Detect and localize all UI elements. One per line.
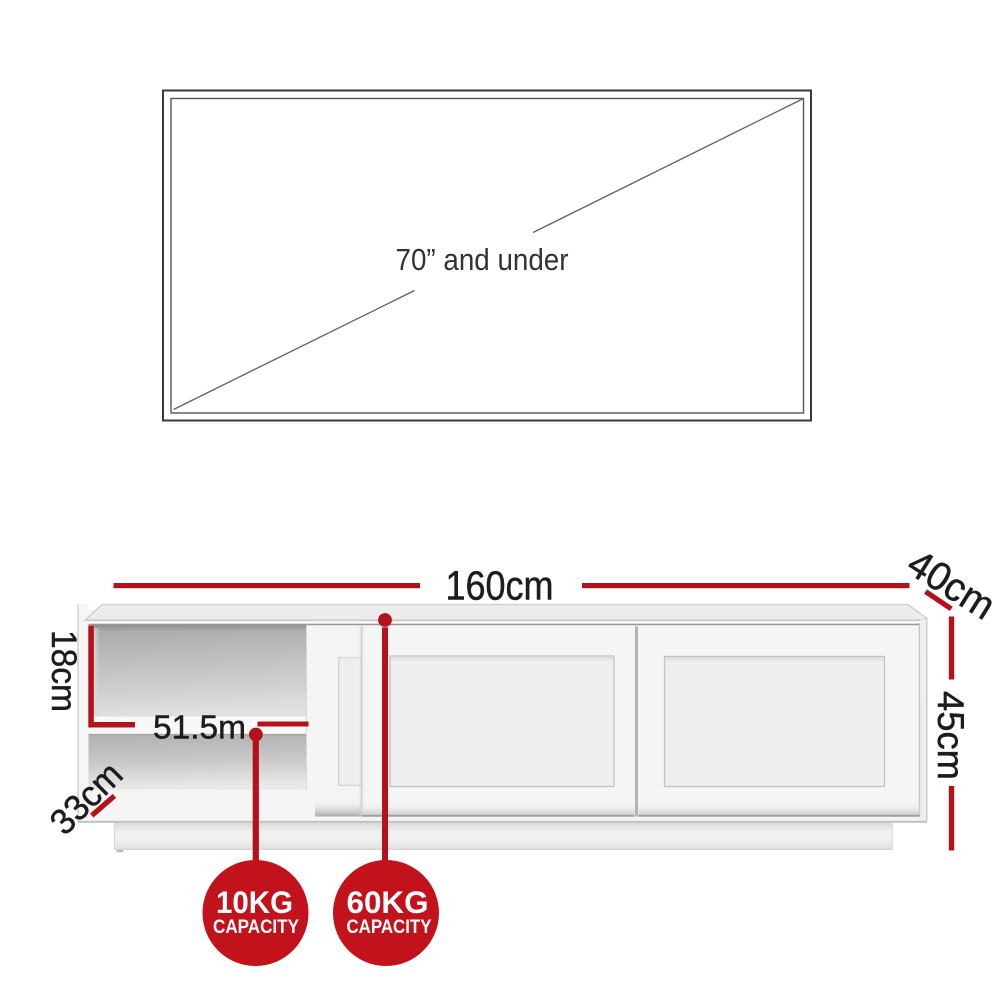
- svg-text:70” and under: 70” and under: [396, 242, 569, 277]
- svg-text:60KG: 60KG: [347, 884, 429, 920]
- svg-text:18cm: 18cm: [44, 630, 83, 712]
- svg-text:CAPACITY: CAPACITY: [213, 917, 299, 938]
- svg-text:CAPACITY: CAPACITY: [347, 917, 432, 938]
- svg-text:10KG: 10KG: [216, 884, 293, 920]
- svg-text:51.5m: 51.5m: [153, 709, 246, 746]
- svg-text:160cm: 160cm: [446, 563, 554, 609]
- svg-text:45cm: 45cm: [930, 691, 971, 780]
